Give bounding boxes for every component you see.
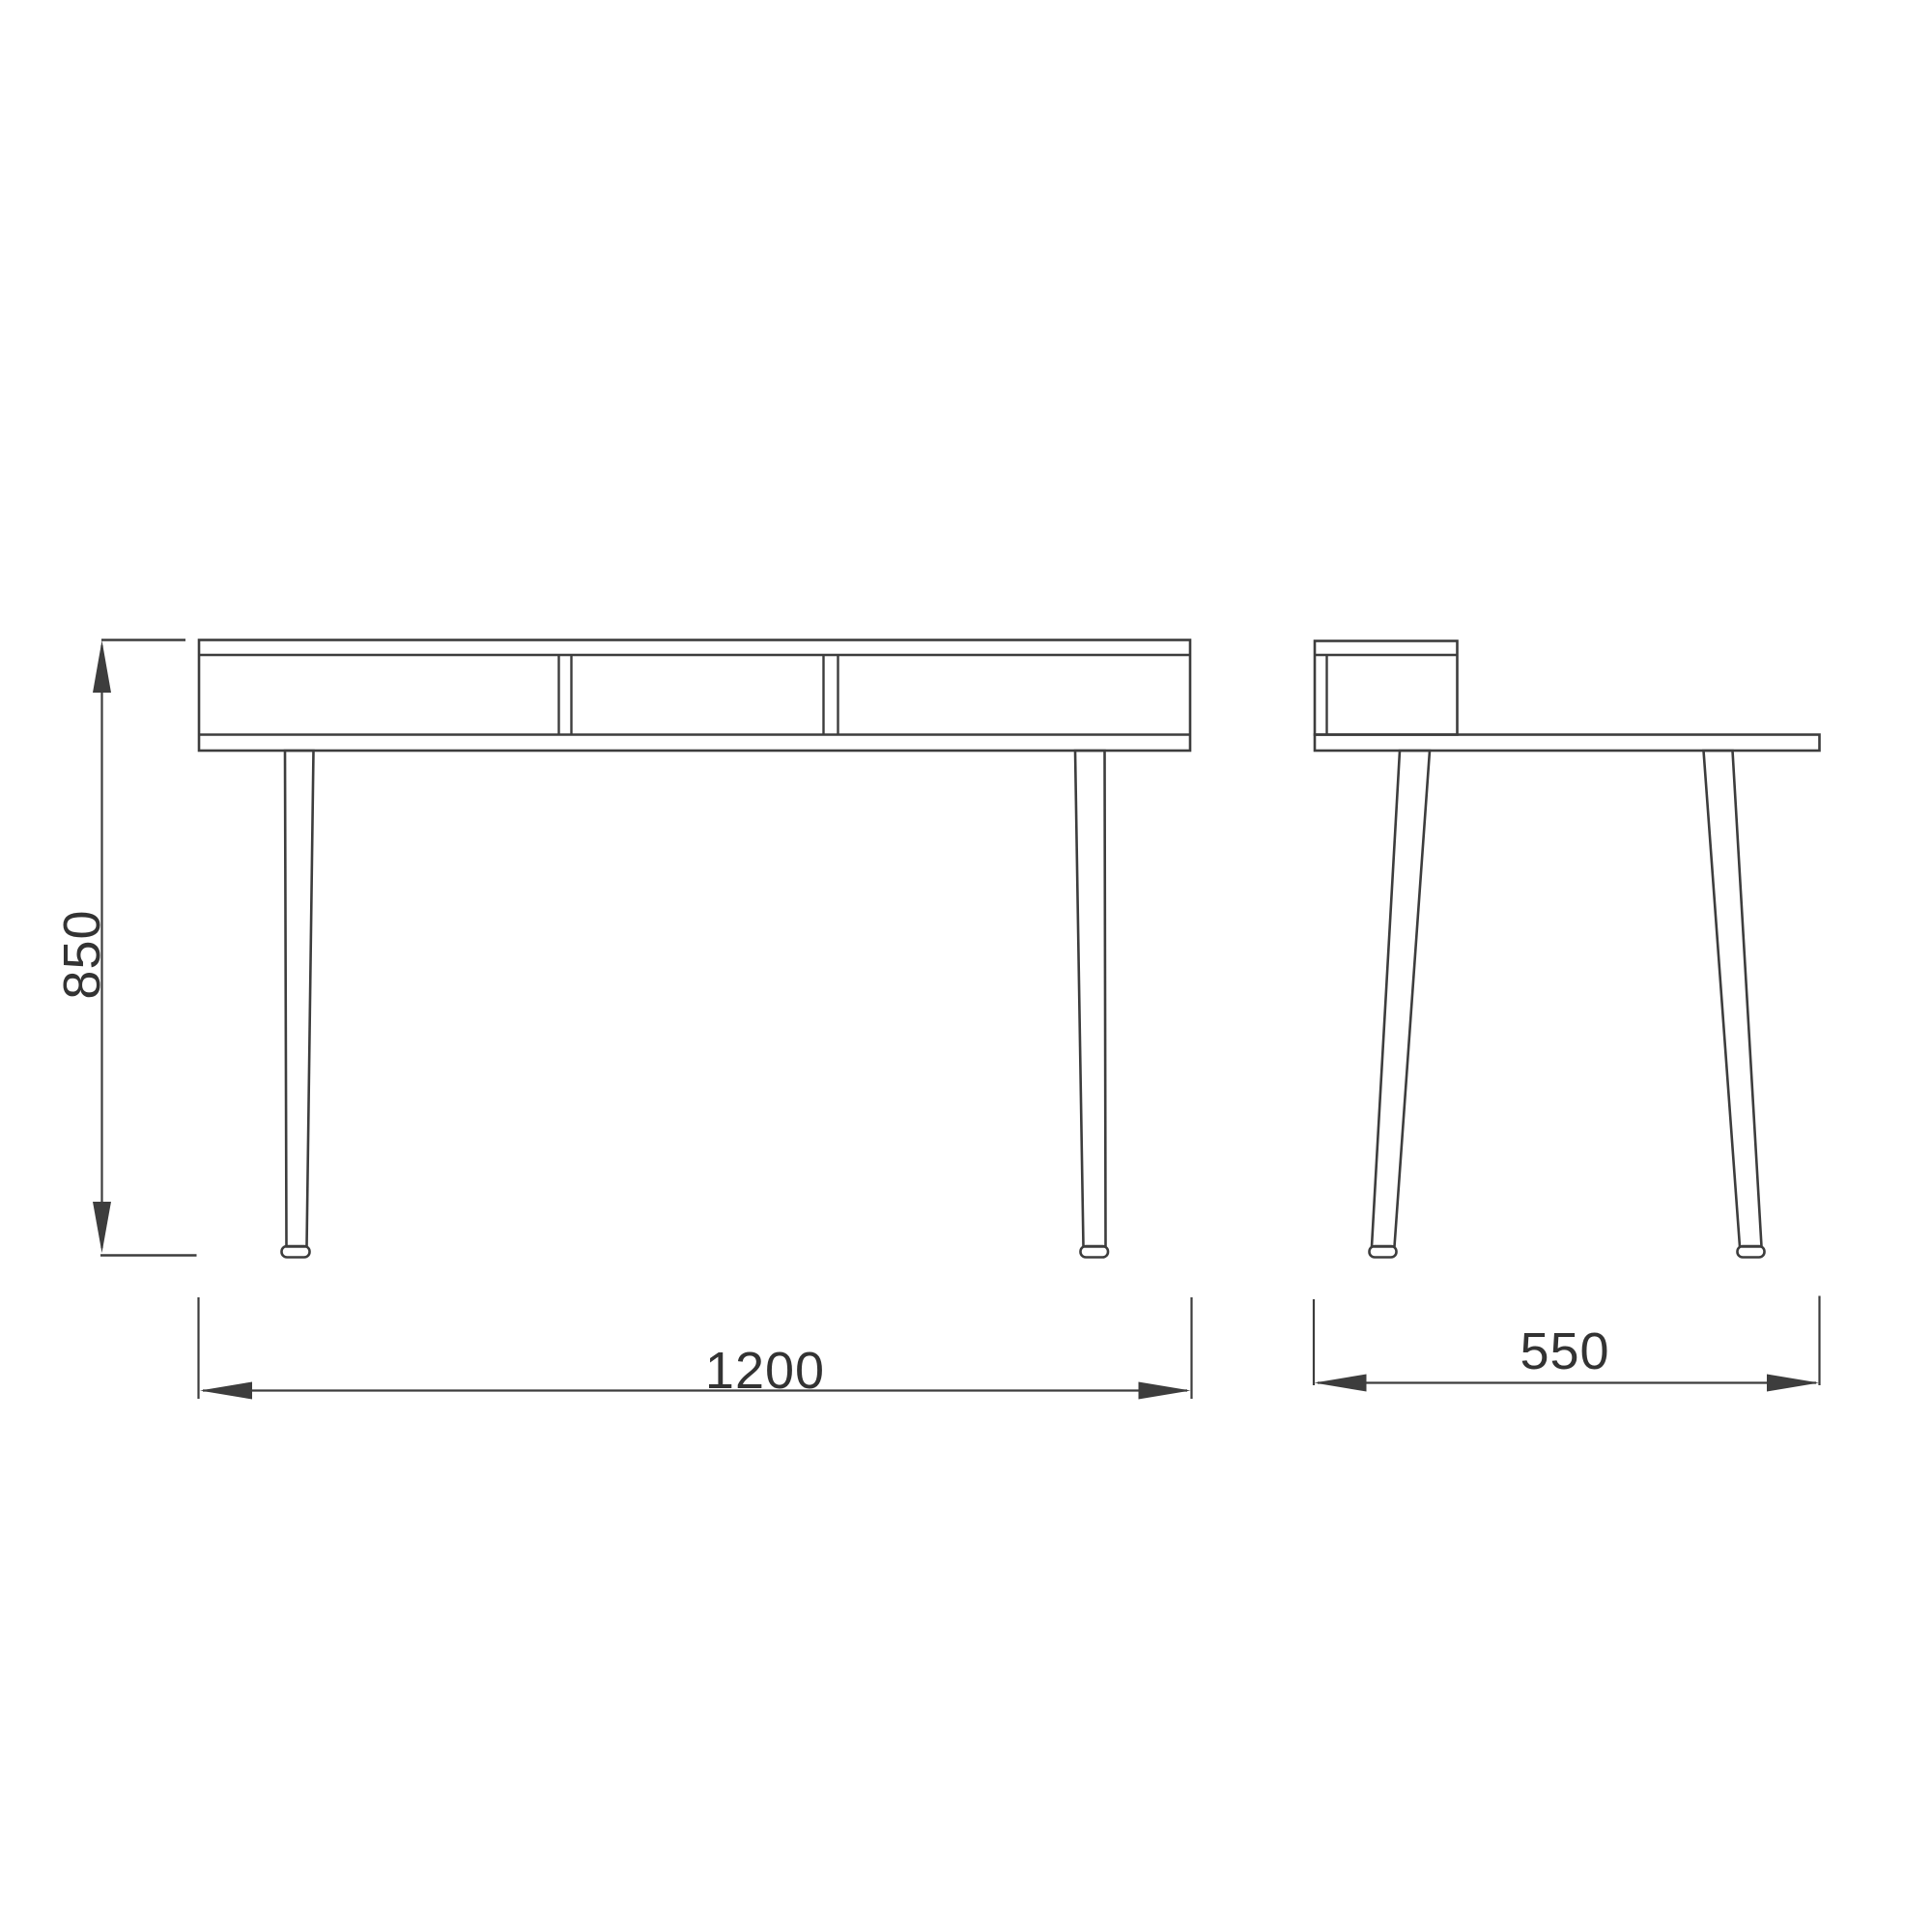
arrow-right-icon [1139,1382,1191,1400]
dimension-height: 850 [53,640,197,1256]
front-right-leg [1075,751,1106,1247]
front-left-leg [285,751,314,1247]
desk-technical-drawing: 850 1200 550 [0,0,1932,1932]
height-dimension-label: 850 [53,909,111,999]
side-desktop-slab [1315,735,1820,752]
dimension-depth: 550 [1314,1296,1820,1392]
width-dimension-label: 1200 [705,1342,825,1400]
side-front-leg [1704,751,1762,1247]
arrow-left-icon [1315,1375,1367,1392]
arrow-right-icon [1767,1375,1819,1392]
arrow-down-icon [93,1202,111,1253]
depth-dimension-label: 550 [1520,1322,1609,1380]
dimension-width: 1200 [199,1297,1192,1400]
arrow-up-icon [93,640,111,693]
arrow-left-icon [200,1382,252,1400]
side-view [1315,641,1820,1258]
side-back-leg [1372,751,1430,1247]
front-view [199,640,1190,1258]
drawing-canvas: 850 1200 550 [0,0,1932,1932]
